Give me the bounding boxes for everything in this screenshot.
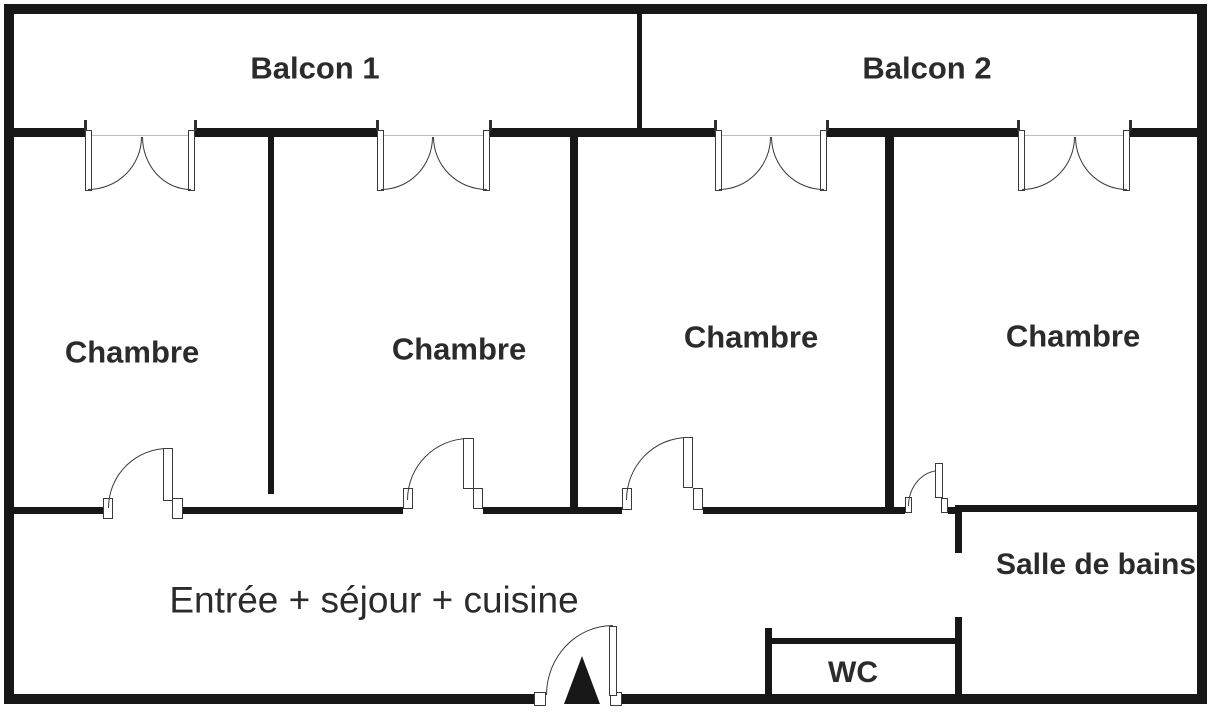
wall-chambre1-chambre2 bbox=[268, 137, 274, 494]
balcony-door1-swing-left bbox=[88, 137, 142, 190]
wall-outer-bottom-left bbox=[4, 694, 544, 704]
balcony-door3-threshold bbox=[722, 135, 820, 136]
floorplan-canvas: Balcon 1 Balcon 2 Chambre Chambre Chambr… bbox=[0, 0, 1224, 712]
balcony-door1-threshold bbox=[92, 135, 188, 136]
wall-wc-top bbox=[765, 638, 962, 644]
wall-corridor-seg3 bbox=[483, 507, 622, 514]
wall-balcony-seg5 bbox=[1130, 128, 1197, 137]
wall-outer-left bbox=[4, 4, 14, 704]
room-label-chambre-1: Chambre bbox=[65, 337, 199, 368]
balcony-door2-threshold bbox=[384, 135, 483, 136]
wall-balcony-seg2 bbox=[195, 128, 377, 137]
wall-bathroom-top bbox=[955, 505, 1207, 512]
chambre4-door-leaf bbox=[935, 463, 943, 498]
entrance-arrow-icon bbox=[564, 656, 600, 704]
wall-balcony-seg1 bbox=[14, 128, 86, 137]
balcony-door1-swing-right bbox=[142, 137, 191, 190]
balcony-door2-swing-left bbox=[381, 137, 433, 190]
wall-chambre2-chambre3 bbox=[570, 137, 578, 514]
balcony-door3-swing-left bbox=[719, 137, 771, 190]
room-label-chambre-4: Chambre bbox=[1006, 321, 1140, 352]
room-label-wc: WC bbox=[828, 658, 878, 688]
wall-balcony-divider bbox=[637, 14, 642, 137]
wall-bathroom-left-upper bbox=[955, 505, 962, 553]
entrance-door-leaf bbox=[609, 626, 617, 696]
room-label-balcon-1: Balcon 1 bbox=[250, 53, 379, 84]
chambre2-door-jamb-right bbox=[473, 488, 483, 509]
wall-corridor-seg4 bbox=[703, 507, 905, 514]
balcony-door2-swing-right bbox=[433, 137, 487, 190]
chambre3-door-swing bbox=[626, 437, 688, 500]
balcony-door3-swing-right bbox=[771, 137, 824, 190]
wall-balcony-seg4 bbox=[827, 128, 1018, 137]
chambre2-door-swing bbox=[407, 438, 469, 500]
chambre1-door-leaf bbox=[163, 448, 173, 501]
chambre3-door-jamb-right bbox=[693, 488, 703, 510]
room-label-sejour: Entrée + séjour + cuisine bbox=[169, 582, 578, 619]
wall-outer-top bbox=[4, 4, 1207, 14]
wall-outer-right bbox=[1197, 4, 1207, 704]
balcony-door4-swing-left bbox=[1022, 137, 1075, 190]
chambre1-door-swing bbox=[108, 448, 168, 508]
wall-bathroom-left-lower bbox=[955, 617, 962, 701]
entrance-door-jamb-left bbox=[534, 692, 546, 706]
chambre1-door-jamb-right bbox=[172, 498, 183, 519]
room-label-chambre-3: Chambre bbox=[684, 322, 818, 353]
room-label-chambre-2: Chambre bbox=[392, 334, 526, 365]
wall-corridor-seg2 bbox=[183, 507, 403, 514]
wall-corridor-seg1 bbox=[14, 507, 103, 514]
chambre2-door-leaf bbox=[463, 438, 474, 489]
chambre4-door-jamb-right bbox=[941, 498, 948, 513]
wall-outer-bottom-right bbox=[614, 694, 1207, 704]
wall-balcony-seg3 bbox=[490, 128, 715, 137]
balcony-door4-swing-right bbox=[1075, 137, 1127, 190]
room-label-balcon-2: Balcon 2 bbox=[862, 53, 991, 84]
wall-chambre3-chambre4 bbox=[885, 137, 894, 514]
chambre3-door-leaf bbox=[683, 437, 693, 488]
balcony-door4-threshold bbox=[1025, 135, 1123, 136]
room-label-salle-de-bains: Salle de bains bbox=[996, 550, 1196, 580]
